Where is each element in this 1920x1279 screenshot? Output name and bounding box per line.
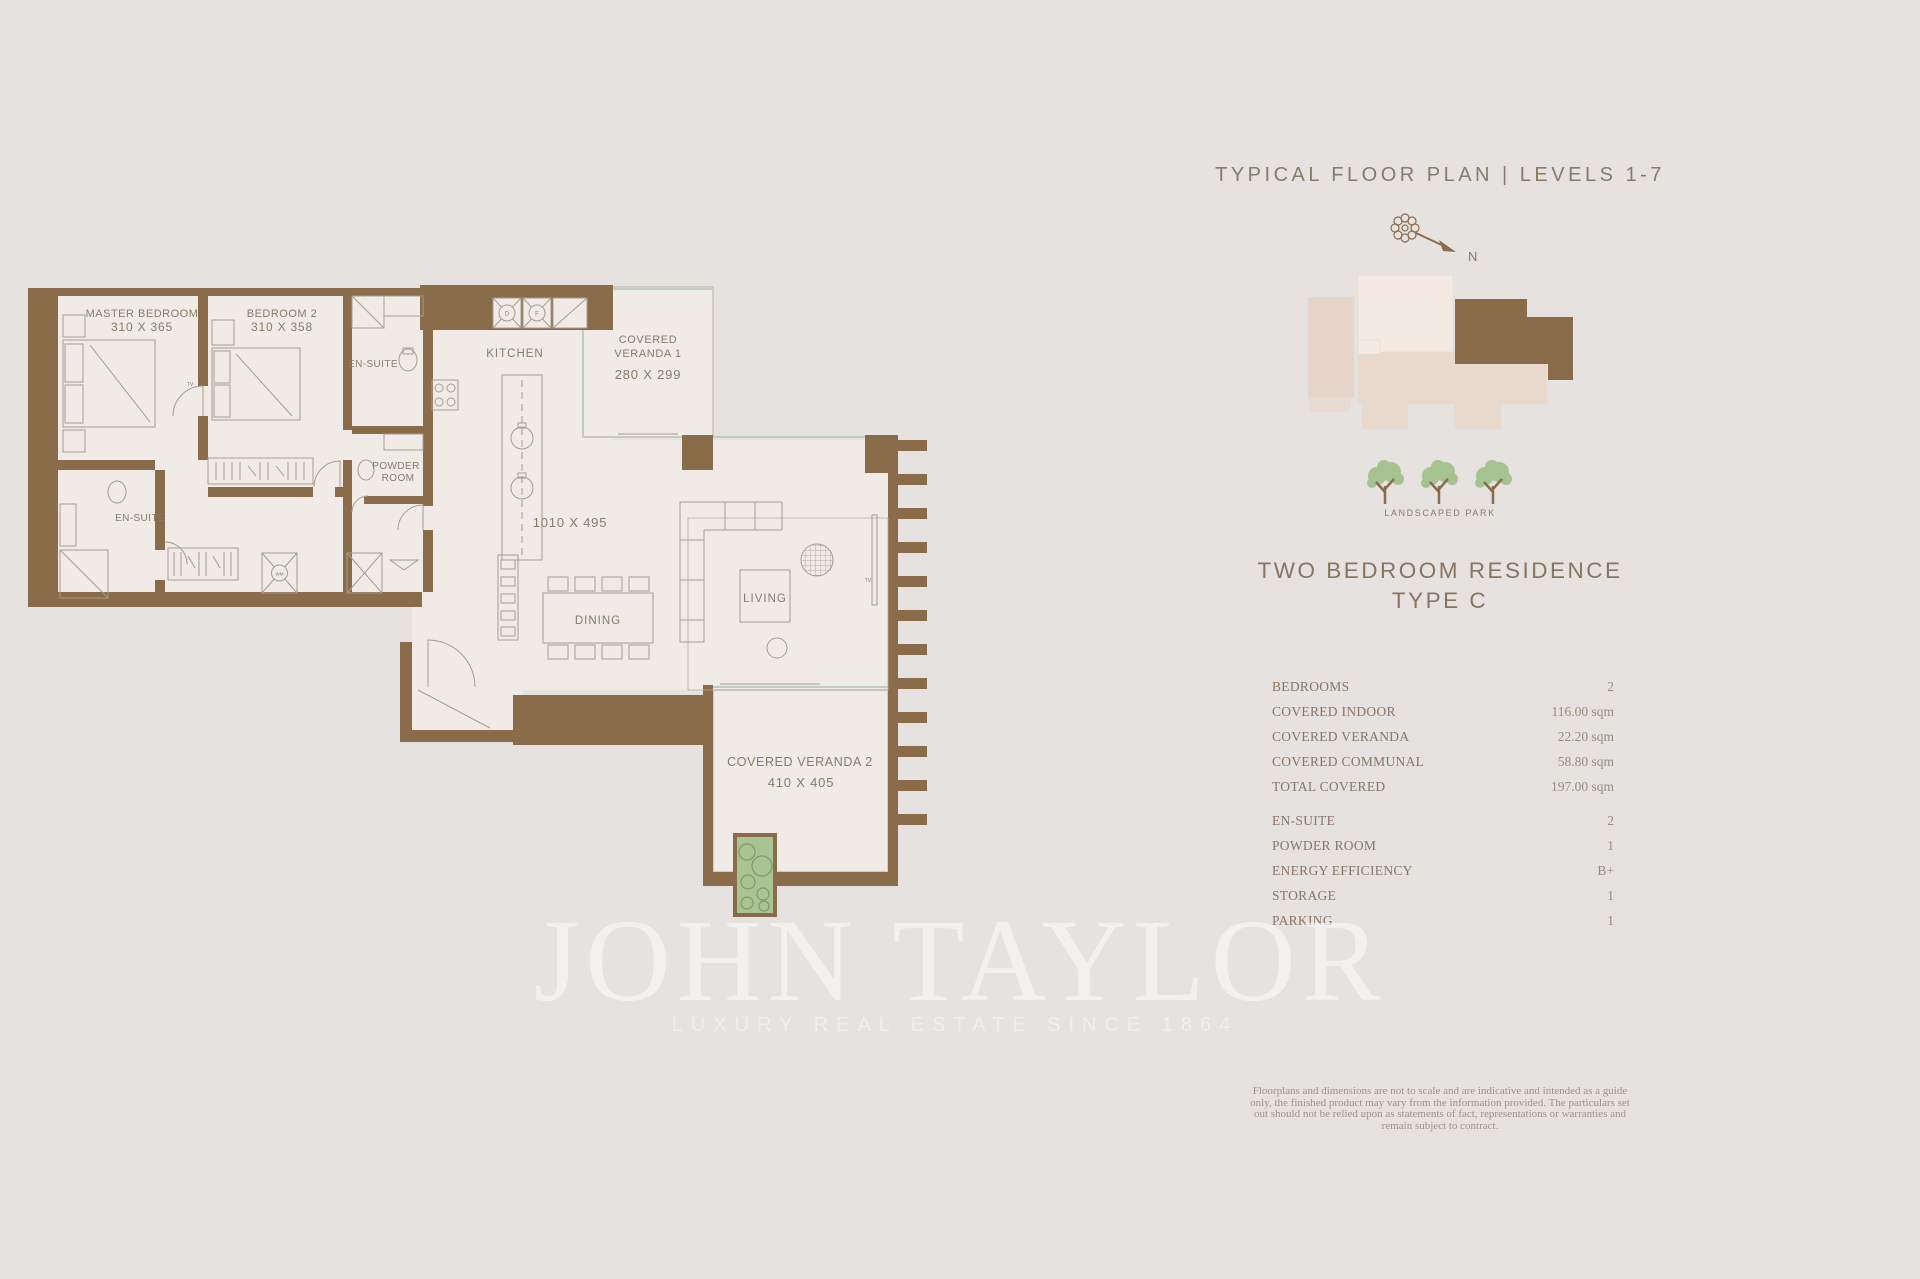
spec-row: STORAGE 1 [1272,888,1614,913]
appliance-d-label: D [505,312,510,318]
spec-row: COVERED INDOOR 116.00 sqm [1272,704,1614,729]
landscaped-park-block: LANDSCAPED PARK [1340,458,1540,518]
watermark-tagline: LUXURY REAL ESTATE SINCE 1864 [672,1014,1239,1037]
facade-fins [897,440,927,825]
appliance-f-label: F [535,312,539,318]
spec-label: COVERED INDOOR [1272,704,1396,720]
master-bedroom-label: MASTER BEDROOM [86,308,199,320]
spec-value: 58.80 sqm [1558,754,1614,770]
spec-label: COVERED VERANDA [1272,729,1409,745]
main-dim: 1010 X 495 [533,515,608,530]
brochure-page: MASTER BEDROOM 310 X 365 BEDROOM 2 310 X… [0,0,1920,1279]
tv-label-bedroom: TV [187,382,194,388]
veranda2-dim: 410 X 405 [768,775,834,790]
compass-icon [1391,214,1456,252]
tv-label-living: TV [865,578,872,584]
dining-label: DINING [575,615,621,627]
wm-label: WM [276,572,284,577]
powder-room-label-1: POWDER [372,461,419,472]
spec-value: 2 [1607,679,1614,695]
ensuite2-label: EN-SUITE [115,513,165,524]
floor-plan: MASTER BEDROOM 310 X 365 BEDROOM 2 310 X… [20,230,980,930]
spec-row: PARKING 1 [1272,913,1614,938]
veranda2-label: COVERED VERANDA 2 [727,755,873,769]
veranda1-dim: 280 X 299 [615,367,681,382]
tree-icon [1472,458,1516,504]
residence-name: TWO BEDROOM RESIDENCE [1160,556,1720,586]
spec-value: 22.20 sqm [1558,729,1614,745]
living-label: LIVING [743,593,787,605]
spec-label: ENERGY EFFICIENCY [1272,863,1413,879]
spec-row: POWDER ROOM 1 [1272,838,1614,863]
spec-row: COVERED COMMUNAL 58.80 sqm [1272,754,1614,779]
spec-value: 1 [1607,838,1614,854]
master-bedroom-dim: 310 X 365 [111,320,173,334]
spec-value: 1 [1607,913,1614,929]
key-plan: N [1300,205,1600,440]
spec-value: B+ [1597,863,1614,879]
park-label: LANDSCAPED PARK [1340,508,1540,518]
bedroom2-label: BEDROOM 2 [247,308,318,320]
spec-label: BEDROOMS [1272,679,1349,695]
disclaimer-text: Floorplans and dimensions are not to sca… [1245,1086,1635,1133]
residence-heading: TWO BEDROOM RESIDENCE TYPE C [1160,556,1720,616]
spec-label: EN-SUITE [1272,813,1335,829]
spec-value: 116.00 sqm [1551,704,1614,720]
spec-row: TOTAL COVERED 197.00 sqm [1272,779,1614,804]
page-title: TYPICAL FLOOR PLAN | LEVELS 1-7 [1160,164,1720,187]
veranda1-label-1: COVERED [619,334,678,346]
spec-value: 197.00 sqm [1551,779,1614,795]
spec-label: PARKING [1272,913,1333,929]
spec-table: BEDROOMS 2 COVERED INDOOR 116.00 sqm COV… [1272,679,1614,938]
key-plan-blocks [1308,275,1573,429]
spec-label: TOTAL COVERED [1272,779,1385,795]
north-label: N [1468,249,1477,264]
bedroom2-dim: 310 X 358 [251,320,313,334]
veranda1-label-2: VERANDA 1 [614,348,681,360]
spec-row: ENERGY EFFICIENCY B+ [1272,863,1614,888]
powder-room-label-2: ROOM [382,473,415,484]
kitchen-label: KITCHEN [486,348,543,360]
spec-row: COVERED VERANDA 22.20 sqm [1272,729,1614,754]
spec-label: POWDER ROOM [1272,838,1376,854]
residence-type: TYPE C [1160,586,1720,616]
veranda-planter [735,835,775,915]
spec-row: EN-SUITE 2 [1272,813,1614,838]
spec-value: 2 [1607,813,1614,829]
spec-value: 1 [1607,888,1614,904]
ensuite1-label: EN-SUITE [348,359,398,370]
spec-label: STORAGE [1272,888,1336,904]
tree-icon [1364,458,1408,504]
spec-label: COVERED COMMUNAL [1272,754,1424,770]
spec-row: BEDROOMS 2 [1272,679,1614,704]
tree-icon [1418,458,1462,504]
